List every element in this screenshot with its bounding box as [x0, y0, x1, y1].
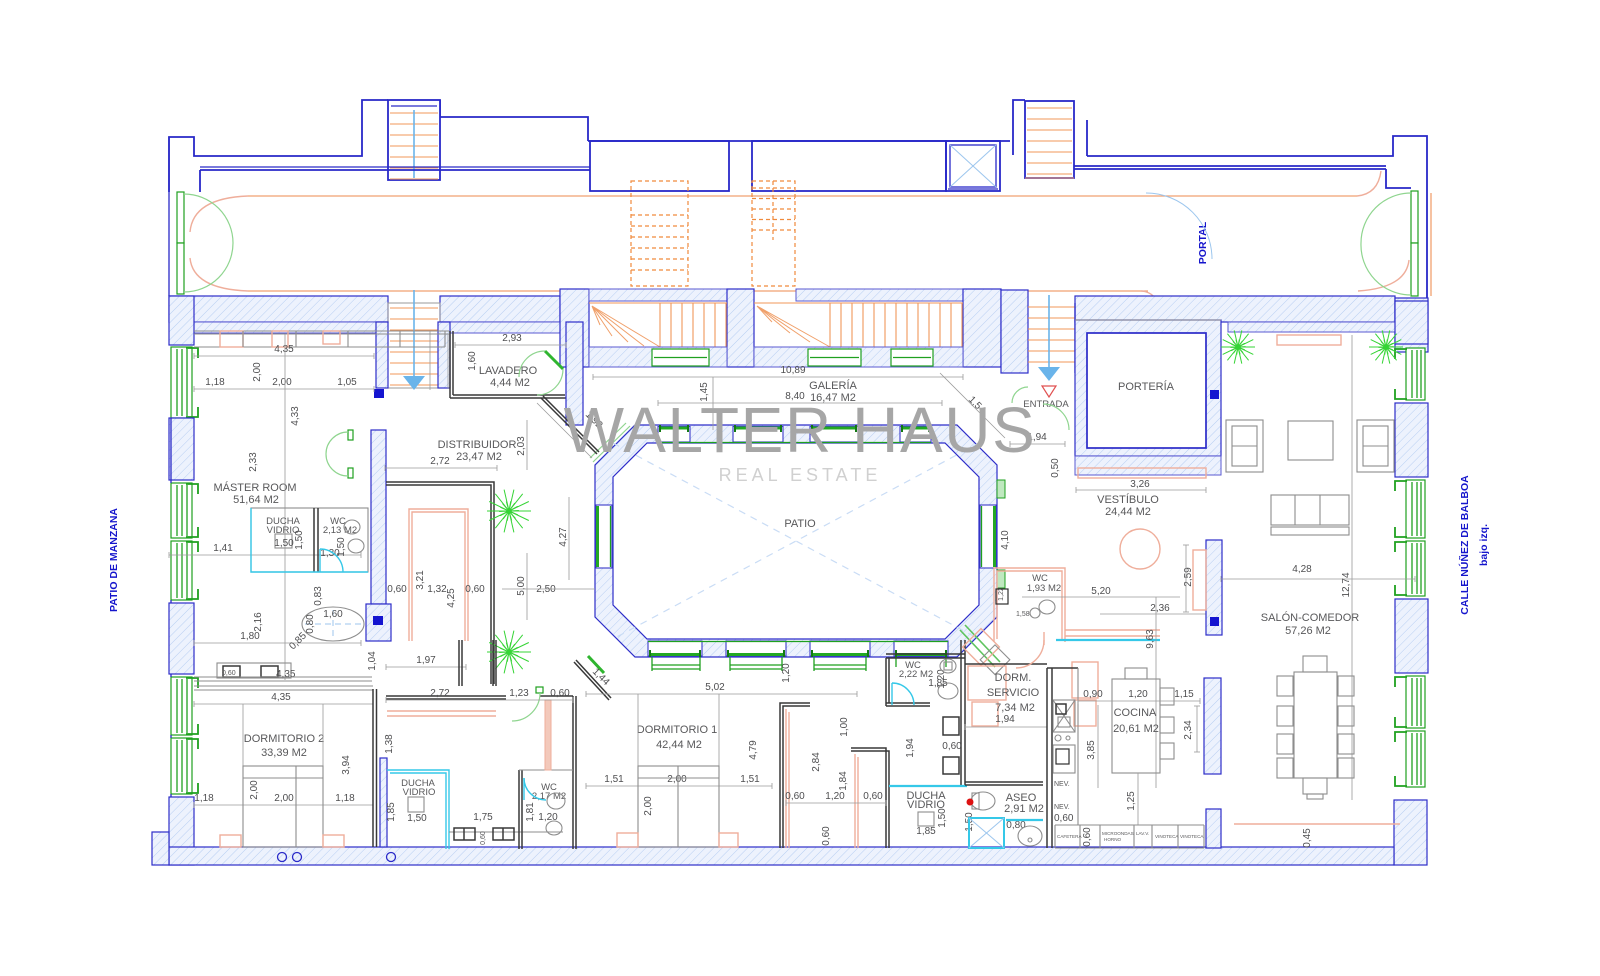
svg-text:0,60: 0,60 [863, 791, 883, 802]
svg-text:1,20: 1,20 [538, 812, 558, 823]
svg-text:1,20: 1,20 [825, 791, 845, 802]
svg-text:1,85: 1,85 [916, 826, 936, 837]
svg-text:MÁSTER ROOM: MÁSTER ROOM [213, 481, 296, 494]
svg-text:0,80: 0,80 [1006, 820, 1026, 831]
svg-text:4,28: 4,28 [1292, 564, 1312, 575]
svg-text:3,26: 3,26 [1130, 479, 1150, 490]
svg-text:1,32: 1,32 [427, 584, 447, 595]
svg-text:0,90: 0,90 [1083, 689, 1103, 700]
svg-text:MICROONDAS: MICROONDAS [1102, 831, 1134, 836]
svg-text:1,50: 1,50 [274, 538, 294, 549]
svg-text:0,60: 0,60 [1054, 813, 1074, 824]
svg-text:REAL ESTATE: REAL ESTATE [719, 465, 882, 485]
svg-text:SERVICIO: SERVICIO [987, 687, 1040, 699]
svg-text:5,02: 5,02 [705, 682, 725, 693]
svg-text:COCINA: COCINA [1114, 707, 1157, 719]
svg-text:1,50: 1,50 [294, 530, 305, 550]
svg-text:LAVADERO: LAVADERO [479, 365, 538, 377]
svg-text:0,60: 0,60 [785, 791, 805, 802]
svg-text:33,39 M2: 33,39 M2 [261, 747, 307, 759]
svg-text:2,91 M2: 2,91 M2 [1004, 803, 1044, 815]
svg-text:1,15: 1,15 [1174, 689, 1194, 700]
svg-text:WALTER HAUS: WALTER HAUS [564, 394, 1037, 466]
svg-text:0,60: 0,60 [550, 688, 570, 699]
svg-text:42,44 M2: 42,44 M2 [656, 739, 702, 751]
svg-text:4,35: 4,35 [276, 669, 296, 680]
svg-text:1,18: 1,18 [205, 377, 225, 388]
svg-text:NEV.: NEV. [1054, 781, 1070, 788]
svg-text:PATIO: PATIO [784, 518, 816, 530]
svg-text:1,50: 1,50 [336, 537, 347, 557]
svg-text:4,35: 4,35 [274, 344, 294, 355]
svg-text:0,60: 0,60 [465, 584, 485, 595]
svg-text:VESTÍBULO: VESTÍBULO [1097, 493, 1159, 506]
svg-text:0,60: 0,60 [942, 741, 962, 752]
svg-text:4,10: 4,10 [1000, 530, 1011, 550]
svg-text:0,80: 0,80 [305, 614, 316, 634]
svg-text:51,64 M2: 51,64 M2 [233, 494, 279, 506]
svg-text:1,97: 1,97 [416, 655, 436, 666]
svg-text:1,23: 1,23 [509, 688, 529, 699]
svg-text:NEV.: NEV. [1054, 804, 1070, 811]
svg-text:PATIO DE MANZANA: PATIO DE MANZANA [108, 508, 120, 612]
svg-text:HORNO: HORNO [1104, 837, 1122, 842]
svg-text:2,00: 2,00 [274, 793, 294, 804]
svg-text:1,60: 1,60 [323, 609, 343, 620]
svg-text:2,00: 2,00 [272, 377, 292, 388]
svg-text:DORM.: DORM. [995, 672, 1032, 684]
svg-text:2,00: 2,00 [667, 774, 687, 785]
svg-text:PORTAL: PORTAL [1197, 221, 1209, 264]
svg-text:1,25: 1,25 [1126, 791, 1137, 811]
svg-text:5,00: 5,00 [516, 576, 527, 596]
svg-text:2,72: 2,72 [430, 456, 450, 467]
svg-text:4,27: 4,27 [558, 527, 569, 547]
svg-text:1,05: 1,05 [337, 377, 357, 388]
svg-text:12,74: 12,74 [1341, 572, 1352, 597]
svg-text:2,84: 2,84 [811, 752, 822, 772]
svg-text:2,00: 2,00 [643, 796, 654, 816]
svg-text:bajo izq.: bajo izq. [1478, 524, 1490, 566]
svg-text:VINOTECA: VINOTECA [1180, 834, 1204, 839]
svg-text:LAV.V.: LAV.V. [1136, 831, 1149, 836]
svg-text:1,94: 1,94 [905, 738, 916, 758]
svg-text:4,25: 4,25 [446, 588, 457, 608]
svg-text:2,00: 2,00 [249, 780, 260, 800]
svg-text:1,84: 1,84 [838, 771, 849, 791]
svg-text:1,20: 1,20 [1128, 689, 1148, 700]
svg-text:0,60: 0,60 [387, 584, 407, 595]
svg-text:1,50: 1,50 [407, 813, 427, 824]
svg-text:1,60: 1,60 [467, 351, 478, 371]
svg-text:57,26 M2: 57,26 M2 [1285, 625, 1331, 637]
svg-text:1,00: 1,00 [839, 717, 850, 737]
svg-text:4,35: 4,35 [271, 692, 291, 703]
svg-text:24,44 M2: 24,44 M2 [1105, 506, 1151, 518]
svg-text:2,03: 2,03 [516, 436, 527, 456]
svg-text:1,81: 1,81 [525, 802, 536, 822]
svg-text:3,21: 3,21 [415, 570, 426, 590]
svg-text:1,18: 1,18 [194, 793, 214, 804]
svg-text:2,00: 2,00 [252, 362, 263, 382]
svg-text:3,94: 3,94 [341, 755, 352, 775]
svg-text:DORMITORIO 1: DORMITORIO 1 [637, 724, 717, 736]
svg-text:2,36: 2,36 [1150, 603, 1170, 614]
svg-text:2,93: 2,93 [502, 333, 522, 344]
svg-text:PORTERÍA: PORTERÍA [1118, 380, 1175, 393]
svg-text:0,60: 0,60 [222, 670, 236, 677]
svg-text:4,44 M2: 4,44 M2 [490, 377, 530, 389]
svg-text:1,04: 1,04 [367, 651, 378, 671]
svg-text:4,33: 4,33 [290, 406, 301, 426]
svg-text:2,50: 2,50 [536, 584, 556, 595]
svg-text:0,45: 0,45 [1302, 828, 1313, 848]
svg-text:1,51: 1,51 [604, 774, 624, 785]
svg-text:1,41: 1,41 [213, 543, 233, 554]
svg-text:23,47 M2: 23,47 M2 [456, 451, 502, 463]
svg-text:2,34: 2,34 [1183, 720, 1194, 740]
svg-text:20,61 M2: 20,61 M2 [1113, 723, 1159, 735]
svg-text:1,18: 1,18 [335, 793, 355, 804]
svg-text:DISTRIBUIDOR: DISTRIBUIDOR [438, 439, 517, 451]
svg-text:2,16: 2,16 [253, 612, 264, 632]
svg-text:1,75: 1,75 [473, 812, 493, 823]
svg-text:1,93 M2: 1,93 M2 [1027, 583, 1061, 594]
svg-text:1,80: 1,80 [240, 631, 260, 642]
svg-text:4,79: 4,79 [748, 740, 759, 760]
svg-text:VIDRIO: VIDRIO [403, 787, 436, 798]
svg-text:1,44: 1,44 [590, 666, 612, 688]
svg-text:5,20: 5,20 [1091, 586, 1111, 597]
svg-text:CALLE NÚÑEZ DE BALBOA: CALLE NÚÑEZ DE BALBOA [1458, 475, 1471, 615]
svg-text:2,72: 2,72 [430, 688, 450, 699]
svg-text:10,89: 10,89 [780, 365, 805, 376]
svg-text:VINOTECA: VINOTECA [1155, 834, 1179, 839]
svg-text:2,33: 2,33 [248, 452, 259, 472]
svg-text:1,50: 1,50 [937, 808, 948, 828]
svg-text:DORMITORIO 2: DORMITORIO 2 [244, 733, 324, 745]
svg-text:7,34 M2: 7,34 M2 [995, 702, 1035, 714]
svg-text:1,51: 1,51 [740, 774, 760, 785]
svg-text:1,20: 1,20 [936, 669, 947, 689]
svg-text:1,58: 1,58 [1016, 611, 1030, 618]
svg-text:SALÓN-COMEDOR: SALÓN-COMEDOR [1261, 611, 1359, 624]
svg-text:0,83: 0,83 [313, 586, 324, 606]
svg-text:3,85: 3,85 [1086, 740, 1097, 760]
svg-text:GALERÍA: GALERÍA [809, 379, 857, 392]
svg-text:0,60: 0,60 [1082, 827, 1093, 847]
svg-text:0,60: 0,60 [821, 826, 832, 846]
svg-text:CAFETERA: CAFETERA [1057, 834, 1082, 839]
svg-text:1,94: 1,94 [995, 714, 1015, 725]
svg-text:0,60: 0,60 [480, 831, 487, 845]
svg-text:9,63: 9,63 [1145, 629, 1156, 649]
svg-text:1,20: 1,20 [781, 663, 792, 683]
svg-text:0,50: 0,50 [1050, 458, 1061, 478]
svg-text:1,85: 1,85 [386, 802, 397, 822]
svg-text:1,38: 1,38 [384, 734, 395, 754]
